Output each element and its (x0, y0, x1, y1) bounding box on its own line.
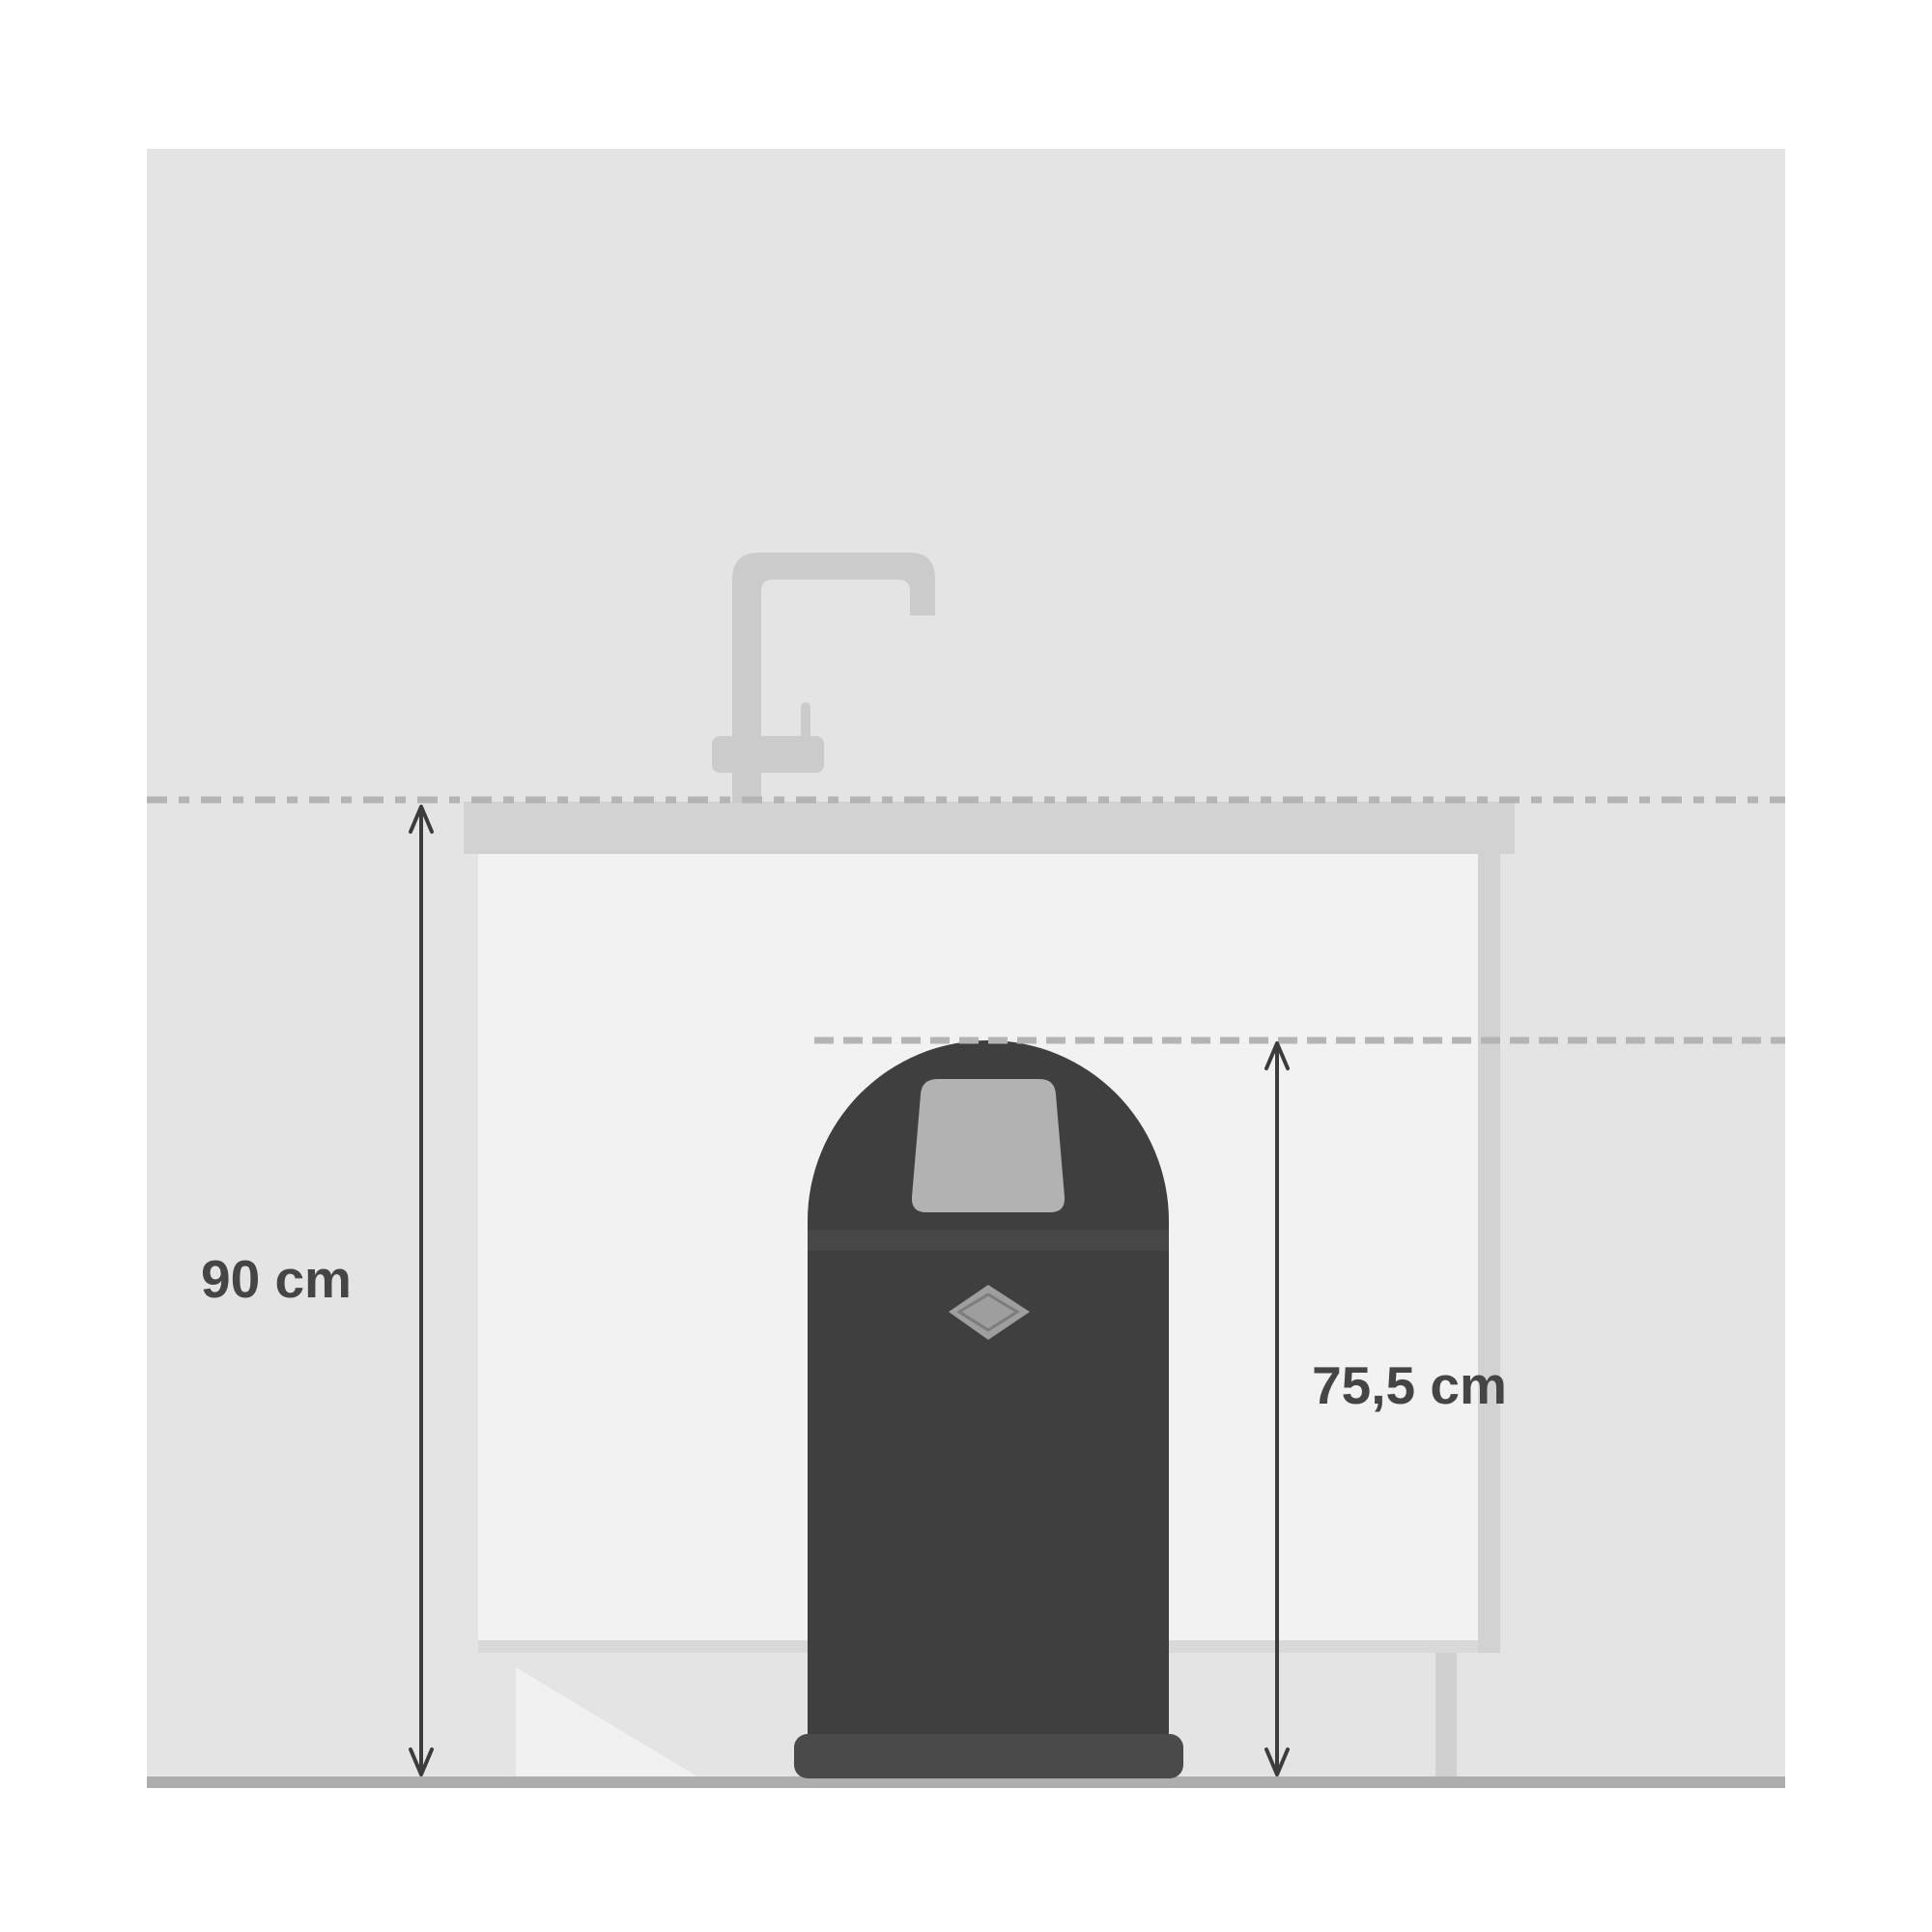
diagram-canvas: 90 cm 75,5 cm (0, 0, 1932, 1932)
cabinet-side-panel (1478, 854, 1500, 1653)
dimension-diagram: 90 cm 75,5 cm (0, 0, 1932, 1932)
bin-push-flap (912, 1079, 1065, 1212)
counter-height-label: 90 cm (201, 1249, 352, 1309)
cabinet-leg (1435, 1653, 1457, 1776)
push-bin-icon (794, 1040, 1183, 1778)
counter-top (464, 802, 1515, 854)
bin-lid-band (808, 1230, 1169, 1251)
bin-pedestal-base (794, 1734, 1183, 1778)
faucet-base (712, 736, 824, 773)
faucet-lever (801, 702, 810, 741)
bin-height-label: 75,5 cm (1312, 1355, 1507, 1415)
